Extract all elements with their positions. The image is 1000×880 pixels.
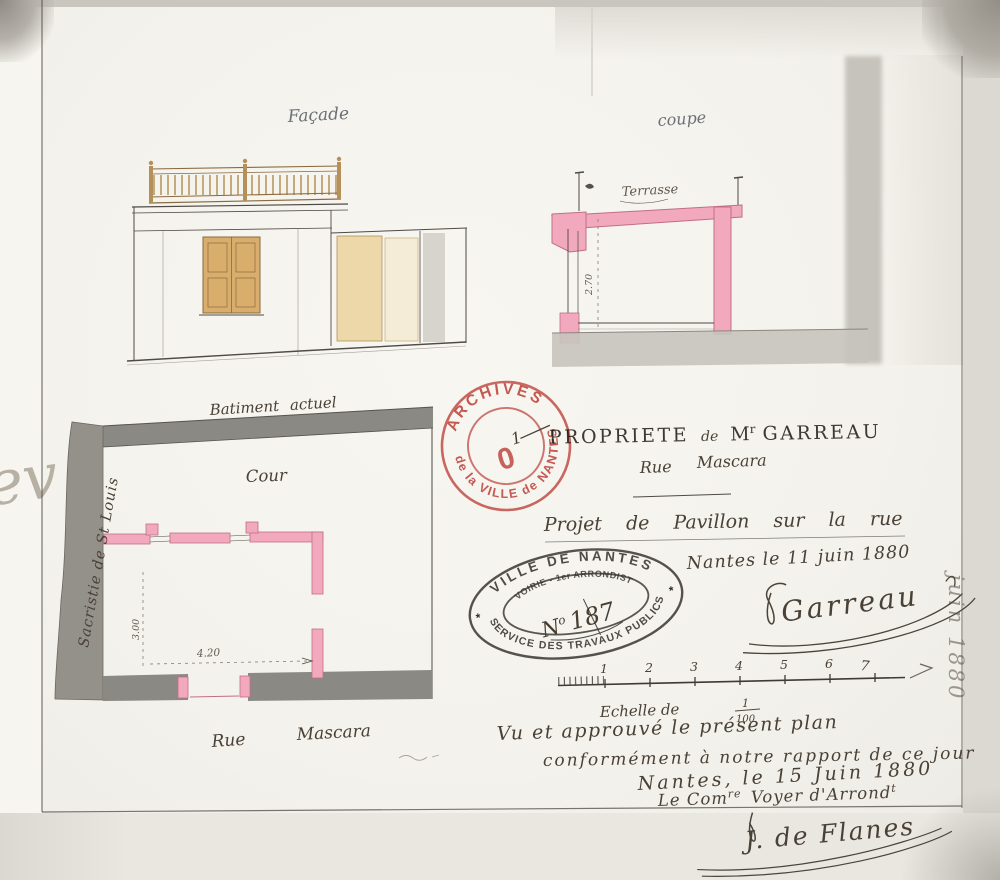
projet-line: Projet de Pavillon sur la rue xyxy=(543,508,903,536)
scanned-sheet: juin 1880 ev xyxy=(0,0,1000,880)
scale-number-7: 7 xyxy=(860,658,871,675)
street-name-label: Mascara xyxy=(295,721,371,745)
facade-door xyxy=(199,237,264,315)
voirie-stamp: VILLE DE NANTES VOIRIE - 1er ARRONDIST S… xyxy=(463,536,690,672)
scale-number-5: 5 xyxy=(780,657,788,672)
owner-signature: Garreau xyxy=(735,560,979,660)
coupe-drawing: 2.70 Terrasse coupe xyxy=(552,108,868,367)
svg-text:J. de Flanes: J. de Flanes xyxy=(739,811,917,855)
monsieur-sup: r xyxy=(750,422,756,436)
drawing-layer: Façade 2.70 Terrasse coupe xyxy=(0,0,1000,880)
pavilion-walls xyxy=(104,522,323,698)
scale-fraction-numerator: 1 xyxy=(742,697,749,710)
owner-name: GARREAU xyxy=(762,421,881,445)
monsieur-abbrev: M xyxy=(730,423,750,445)
plan-depth-dimension: 3.00 xyxy=(131,619,142,640)
terrasse-label: Terrasse xyxy=(621,182,679,200)
scale-number-4: 4 xyxy=(734,658,743,673)
coupe-label: coupe xyxy=(657,108,707,130)
date-line: Nantes le 11 juin 1880 xyxy=(685,542,911,574)
facade-label: Façade xyxy=(286,104,349,127)
scale-number-3: 3 xyxy=(690,659,698,674)
approval-block: Vu et approuvé le présent plan conformém… xyxy=(496,711,975,880)
de-word: de xyxy=(701,429,719,445)
title-street-name: Mascara xyxy=(695,451,766,472)
scale-end-flourish xyxy=(910,664,932,678)
archives-arc-top: ARCHIVES xyxy=(435,368,550,438)
plan-width-dimension: 4.20 xyxy=(196,647,221,660)
scale-bar: 1 2 3 4 5 6 7 xyxy=(558,656,932,688)
approval-line1: Vu et approuvé le présent plan xyxy=(496,711,838,745)
street-wall-left xyxy=(103,674,188,701)
property-title: PROPRIETEdeMrGARREAU xyxy=(549,420,882,449)
balustrade xyxy=(149,157,341,203)
facade-right-wing xyxy=(331,228,467,343)
pencil-mark xyxy=(399,755,439,760)
scale-number-1: 1 xyxy=(600,661,608,676)
title-rue-word: Rue xyxy=(638,457,671,477)
street-wall-right xyxy=(248,670,432,701)
scale-number-6: 6 xyxy=(825,656,833,671)
svg-text:Garreau: Garreau xyxy=(779,579,920,629)
rue-label: Rue xyxy=(210,730,246,752)
post-flag-mark xyxy=(585,184,594,189)
scale-number-2: 2 xyxy=(644,660,653,675)
facade-drawing: Façade xyxy=(127,104,467,365)
star-left-icon: * xyxy=(475,610,482,625)
coupe-height-dimension: 2.70 xyxy=(584,274,595,296)
cour-label: Cour xyxy=(245,466,288,486)
plan-drawing: 3.00 4.20 Batiment actuel Cour Sacristie… xyxy=(55,393,439,760)
star-right-icon: * xyxy=(668,583,675,598)
